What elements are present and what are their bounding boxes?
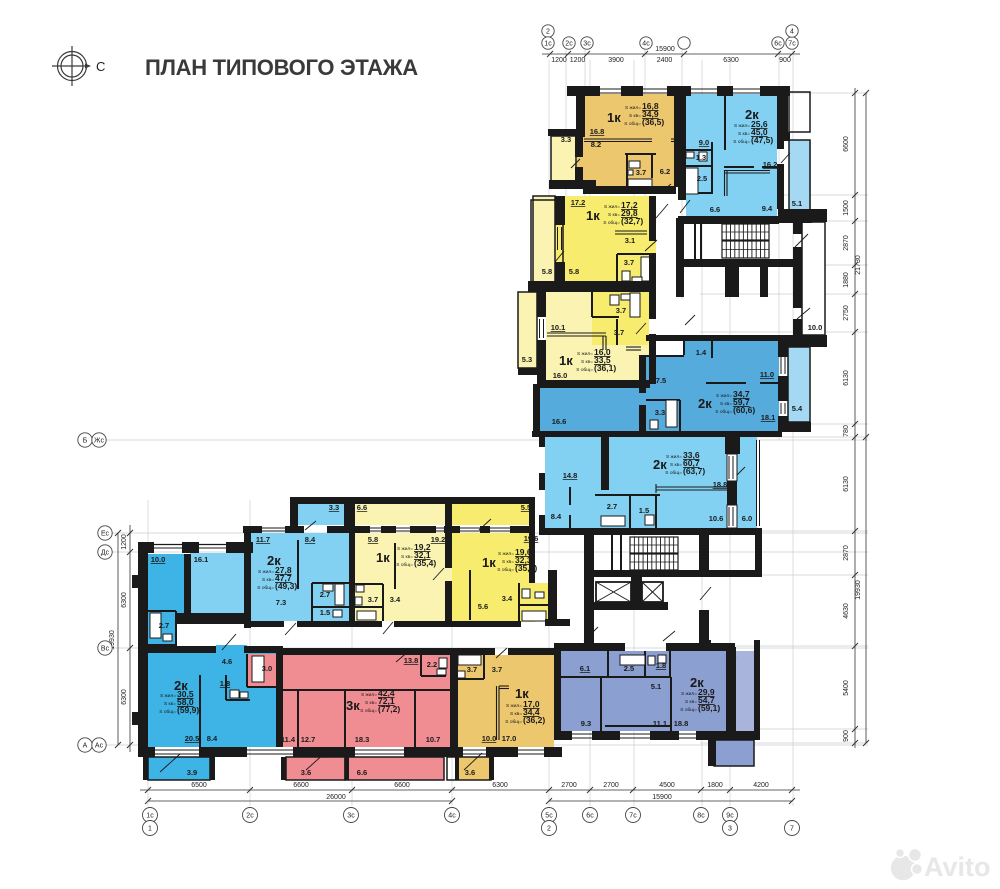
svg-text:1.8: 1.8 bbox=[220, 679, 230, 688]
svg-text:3с: 3с bbox=[347, 813, 355, 820]
svg-text:7с: 7с bbox=[629, 813, 637, 820]
svg-text:19930: 19930 bbox=[855, 580, 862, 600]
svg-text:10.0: 10.0 bbox=[808, 323, 823, 332]
svg-text:6600: 6600 bbox=[293, 782, 309, 789]
svg-text:(77,2): (77,2) bbox=[378, 704, 400, 714]
svg-text:1к: 1к bbox=[482, 555, 496, 570]
svg-text:S общ=: S общ= bbox=[733, 139, 750, 145]
svg-text:3.9: 3.9 bbox=[187, 768, 197, 777]
svg-text:2: 2 bbox=[546, 28, 550, 35]
svg-text:1к: 1к bbox=[376, 550, 390, 565]
svg-text:S кв=: S кв= bbox=[164, 701, 176, 707]
svg-text:11.4: 11.4 bbox=[281, 735, 296, 744]
svg-text:(59,9): (59,9) bbox=[177, 705, 199, 715]
svg-text:2.5: 2.5 bbox=[624, 664, 634, 673]
svg-text:(35,0): (35,0) bbox=[515, 563, 537, 573]
svg-text:3.0: 3.0 bbox=[262, 664, 272, 673]
svg-text:Ес: Ес bbox=[101, 531, 110, 538]
svg-text:S жил=: S жил= bbox=[734, 123, 750, 129]
svg-text:19.2: 19.2 bbox=[431, 535, 446, 544]
svg-text:16.8: 16.8 bbox=[590, 127, 605, 136]
svg-text:3.7: 3.7 bbox=[636, 168, 646, 177]
svg-text:10.7: 10.7 bbox=[426, 735, 441, 744]
svg-text:S жил=: S жил= bbox=[716, 393, 732, 399]
svg-text:6с: 6с bbox=[774, 40, 782, 47]
svg-text:S кв=: S кв= bbox=[262, 577, 274, 583]
svg-text:1с: 1с bbox=[146, 813, 154, 820]
svg-text:Ас: Ас bbox=[95, 743, 104, 750]
svg-text:900: 900 bbox=[779, 57, 791, 64]
svg-text:5.1: 5.1 bbox=[651, 682, 661, 691]
svg-text:16.6: 16.6 bbox=[552, 417, 567, 426]
svg-text:20.5: 20.5 bbox=[185, 734, 200, 743]
svg-text:5.4: 5.4 bbox=[792, 404, 803, 413]
svg-text:7.5: 7.5 bbox=[656, 376, 666, 385]
svg-text:2.7: 2.7 bbox=[159, 621, 169, 630]
svg-text:S кв=: S кв= bbox=[502, 559, 514, 565]
svg-text:3.3: 3.3 bbox=[329, 503, 339, 512]
svg-text:S общ=: S общ= bbox=[257, 585, 274, 591]
svg-text:4с: 4с bbox=[448, 813, 456, 820]
svg-text:А: А bbox=[83, 743, 88, 750]
svg-text:2.5: 2.5 bbox=[697, 174, 707, 183]
svg-text:9.4: 9.4 bbox=[762, 204, 773, 213]
svg-text:S кв=: S кв= bbox=[670, 462, 682, 468]
svg-text:6.6: 6.6 bbox=[357, 768, 367, 777]
svg-text:1200: 1200 bbox=[121, 534, 128, 550]
svg-text:(32,7): (32,7) bbox=[621, 216, 643, 226]
svg-text:900: 900 bbox=[843, 730, 850, 742]
svg-text:S жил=: S жил= bbox=[506, 703, 522, 709]
svg-text:S жил=: S жил= bbox=[498, 551, 514, 557]
svg-text:4: 4 bbox=[790, 28, 794, 35]
svg-text:9с: 9с bbox=[726, 813, 734, 820]
svg-text:1: 1 bbox=[148, 826, 152, 833]
svg-text:5.1: 5.1 bbox=[792, 199, 802, 208]
svg-text:3.4: 3.4 bbox=[390, 595, 401, 604]
svg-text:2.2: 2.2 bbox=[427, 660, 437, 669]
svg-text:S кв=: S кв= bbox=[510, 711, 522, 717]
svg-text:1.5: 1.5 bbox=[639, 506, 649, 515]
svg-text:2700: 2700 bbox=[561, 782, 577, 789]
svg-text:3.3: 3.3 bbox=[561, 135, 571, 144]
svg-text:7с: 7с bbox=[788, 40, 796, 47]
svg-text:S общ=: S общ= bbox=[360, 708, 377, 714]
svg-text:6600: 6600 bbox=[394, 782, 410, 789]
svg-text:S общ=: S общ= bbox=[603, 220, 620, 226]
svg-text:6.2: 6.2 bbox=[660, 167, 670, 176]
svg-text:ПЛАН ТИПОВОГО ЭТАЖА: ПЛАН ТИПОВОГО ЭТАЖА bbox=[145, 55, 418, 80]
svg-text:6600: 6600 bbox=[843, 136, 850, 152]
svg-text:S жил=: S жил= bbox=[397, 546, 413, 552]
svg-text:(35,4): (35,4) bbox=[414, 558, 436, 568]
svg-text:15900: 15900 bbox=[655, 46, 675, 53]
svg-text:8.2: 8.2 bbox=[591, 140, 601, 149]
svg-text:18.3: 18.3 bbox=[355, 735, 370, 744]
svg-text:2870: 2870 bbox=[843, 545, 850, 561]
svg-text:8.4: 8.4 bbox=[551, 512, 562, 521]
svg-text:3.3: 3.3 bbox=[655, 408, 665, 417]
svg-text:2с: 2с bbox=[246, 813, 254, 820]
svg-text:2с: 2с bbox=[565, 40, 573, 47]
svg-text:(60,6): (60,6) bbox=[733, 405, 755, 415]
svg-text:S жил=: S жил= bbox=[604, 204, 620, 210]
svg-text:2700: 2700 bbox=[603, 782, 619, 789]
svg-text:5.8: 5.8 bbox=[569, 267, 579, 276]
svg-text:S жил=: S жил= bbox=[577, 351, 593, 357]
svg-text:10.0: 10.0 bbox=[151, 555, 166, 564]
svg-text:S общ=: S общ= bbox=[497, 567, 514, 573]
svg-text:1.3: 1.3 bbox=[696, 153, 706, 162]
svg-text:S жил=: S жил= bbox=[361, 692, 377, 698]
svg-text:S общ=: S общ= bbox=[159, 709, 176, 715]
svg-text:S общ=: S общ= bbox=[665, 470, 682, 476]
svg-text:S кв=: S кв= bbox=[581, 359, 593, 365]
svg-text:6300: 6300 bbox=[121, 592, 128, 608]
svg-text:S кв=: S кв= bbox=[629, 113, 641, 119]
svg-text:3.7: 3.7 bbox=[624, 258, 634, 267]
svg-text:(47,5): (47,5) bbox=[751, 135, 773, 145]
svg-text:17.0: 17.0 bbox=[502, 734, 517, 743]
svg-text:5.8: 5.8 bbox=[368, 535, 378, 544]
svg-text:(49,3): (49,3) bbox=[275, 581, 297, 591]
svg-text:6.6: 6.6 bbox=[710, 205, 720, 214]
svg-text:S жил=: S жил= bbox=[681, 691, 697, 697]
svg-text:6.0: 6.0 bbox=[742, 514, 752, 523]
svg-text:С: С bbox=[96, 59, 105, 74]
svg-text:S кв=: S кв= bbox=[738, 131, 750, 137]
svg-text:6300: 6300 bbox=[723, 57, 739, 64]
svg-text:S общ=: S общ= bbox=[396, 562, 413, 568]
svg-text:13.8: 13.8 bbox=[404, 656, 419, 665]
svg-text:1к: 1к bbox=[607, 110, 621, 125]
svg-text:5400: 5400 bbox=[843, 680, 850, 696]
svg-text:26000: 26000 bbox=[326, 794, 346, 801]
svg-text:S кв=: S кв= bbox=[365, 700, 377, 706]
svg-text:10.0: 10.0 bbox=[482, 734, 497, 743]
svg-text:3.6: 3.6 bbox=[465, 768, 475, 777]
svg-text:2750: 2750 bbox=[843, 305, 850, 321]
svg-text:7: 7 bbox=[790, 826, 794, 833]
svg-text:6300: 6300 bbox=[121, 689, 128, 705]
svg-text:Жс: Жс bbox=[94, 438, 104, 445]
svg-text:1с: 1с bbox=[544, 40, 552, 47]
svg-text:8.4: 8.4 bbox=[207, 734, 218, 743]
svg-text:5.8: 5.8 bbox=[542, 267, 552, 276]
svg-text:2.7: 2.7 bbox=[607, 502, 617, 511]
svg-text:1к: 1к bbox=[559, 353, 573, 368]
svg-text:3: 3 bbox=[728, 826, 732, 833]
svg-text:3.7: 3.7 bbox=[614, 328, 624, 337]
svg-text:3.7: 3.7 bbox=[467, 665, 477, 674]
svg-text:11.1: 11.1 bbox=[653, 719, 667, 728]
svg-text:S общ=: S общ= bbox=[715, 409, 732, 415]
svg-text:9.3: 9.3 bbox=[581, 719, 591, 728]
svg-text:4с: 4с bbox=[642, 40, 650, 47]
svg-text:(59,1): (59,1) bbox=[698, 703, 720, 713]
svg-text:7.3: 7.3 bbox=[276, 598, 286, 607]
svg-text:S жил=: S жил= bbox=[258, 569, 274, 575]
svg-text:Б: Б bbox=[83, 438, 88, 445]
svg-text:S общ=: S общ= bbox=[576, 367, 593, 373]
svg-text:21730: 21730 bbox=[855, 255, 862, 275]
svg-text:1800: 1800 bbox=[707, 782, 723, 789]
svg-text:14.8: 14.8 bbox=[563, 471, 578, 480]
svg-text:8.4: 8.4 bbox=[305, 535, 316, 544]
svg-text:6130: 6130 bbox=[843, 476, 850, 492]
svg-text:S общ=: S общ= bbox=[680, 707, 697, 713]
svg-text:17.2: 17.2 bbox=[571, 198, 586, 207]
svg-text:11.7: 11.7 bbox=[256, 535, 270, 544]
svg-text:3900: 3900 bbox=[608, 57, 624, 64]
svg-text:1.5: 1.5 bbox=[320, 608, 330, 617]
svg-text:1200: 1200 bbox=[551, 57, 567, 64]
svg-text:3.7: 3.7 bbox=[492, 665, 502, 674]
svg-text:(36,5): (36,5) bbox=[642, 117, 664, 127]
svg-text:11.0: 11.0 bbox=[760, 370, 774, 379]
svg-text:10.6: 10.6 bbox=[709, 514, 724, 523]
svg-text:6130: 6130 bbox=[843, 370, 850, 386]
svg-text:1.4: 1.4 bbox=[696, 348, 707, 357]
svg-text:16.0: 16.0 bbox=[553, 371, 568, 380]
svg-text:S кв=: S кв= bbox=[401, 554, 413, 560]
svg-text:4.6: 4.6 bbox=[222, 657, 232, 666]
svg-text:10.1: 10.1 bbox=[551, 323, 566, 332]
svg-text:5.3: 5.3 bbox=[522, 355, 532, 364]
svg-text:2400: 2400 bbox=[657, 57, 673, 64]
svg-text:12.7: 12.7 bbox=[301, 735, 316, 744]
svg-text:2.7: 2.7 bbox=[320, 590, 330, 599]
svg-text:5с: 5с bbox=[545, 813, 553, 820]
svg-text:6300: 6300 bbox=[492, 782, 508, 789]
svg-text:6с: 6с bbox=[586, 813, 594, 820]
svg-text:780: 780 bbox=[843, 425, 850, 437]
svg-text:3.7: 3.7 bbox=[368, 595, 378, 604]
svg-text:5.6: 5.6 bbox=[478, 602, 488, 611]
svg-text:(36,2): (36,2) bbox=[523, 715, 545, 725]
svg-text:3.7: 3.7 bbox=[616, 306, 626, 315]
svg-text:4200: 4200 bbox=[753, 782, 769, 789]
svg-text:Avito: Avito bbox=[924, 852, 991, 882]
svg-text:S кв=: S кв= bbox=[720, 401, 732, 407]
svg-text:18.1: 18.1 bbox=[761, 413, 776, 422]
svg-text:4500: 4500 bbox=[659, 782, 675, 789]
svg-text:6.1: 6.1 bbox=[580, 664, 590, 673]
svg-text:3к: 3к bbox=[346, 698, 360, 713]
svg-text:S кв=: S кв= bbox=[608, 212, 620, 218]
svg-text:1200: 1200 bbox=[570, 57, 586, 64]
svg-text:5.5: 5.5 bbox=[521, 503, 531, 512]
svg-text:2: 2 bbox=[547, 826, 551, 833]
svg-text:(36,1): (36,1) bbox=[594, 363, 616, 373]
svg-text:2к: 2к bbox=[698, 396, 712, 411]
svg-text:3.6: 3.6 bbox=[301, 768, 311, 777]
svg-text:18.8: 18.8 bbox=[713, 480, 728, 489]
svg-text:Вс: Вс bbox=[101, 646, 110, 653]
svg-text:16.2: 16.2 bbox=[763, 160, 778, 169]
svg-text:1880: 1880 bbox=[843, 272, 850, 288]
svg-text:18.8: 18.8 bbox=[674, 719, 689, 728]
svg-text:3.1: 3.1 bbox=[625, 236, 635, 245]
svg-text:S жил=: S жил= bbox=[625, 105, 641, 111]
svg-text:S кв=: S кв= bbox=[685, 699, 697, 705]
svg-text:8с: 8с bbox=[697, 813, 705, 820]
svg-text:4630: 4630 bbox=[843, 603, 850, 619]
svg-text:Дс: Дс bbox=[101, 550, 110, 557]
svg-text:S общ=: S общ= bbox=[505, 719, 522, 725]
svg-text:1.8: 1.8 bbox=[656, 661, 666, 670]
svg-text:19.6: 19.6 bbox=[524, 534, 539, 543]
svg-text:S жил=: S жил= bbox=[666, 454, 682, 460]
svg-text:15900: 15900 bbox=[652, 794, 672, 801]
svg-text:6500: 6500 bbox=[191, 782, 207, 789]
svg-text:S общ=: S общ= bbox=[624, 121, 641, 127]
svg-text:S жил=: S жил= bbox=[160, 693, 176, 699]
svg-text:9.0: 9.0 bbox=[699, 138, 709, 147]
svg-text:1к: 1к bbox=[586, 208, 600, 223]
svg-text:3с: 3с bbox=[583, 40, 591, 47]
svg-text:16.1: 16.1 bbox=[194, 555, 209, 564]
svg-text:2870: 2870 bbox=[843, 235, 850, 251]
svg-text:1500: 1500 bbox=[843, 200, 850, 216]
svg-text:(63,7): (63,7) bbox=[683, 466, 705, 476]
svg-text:6.6: 6.6 bbox=[357, 503, 367, 512]
svg-text:3.4: 3.4 bbox=[502, 594, 513, 603]
